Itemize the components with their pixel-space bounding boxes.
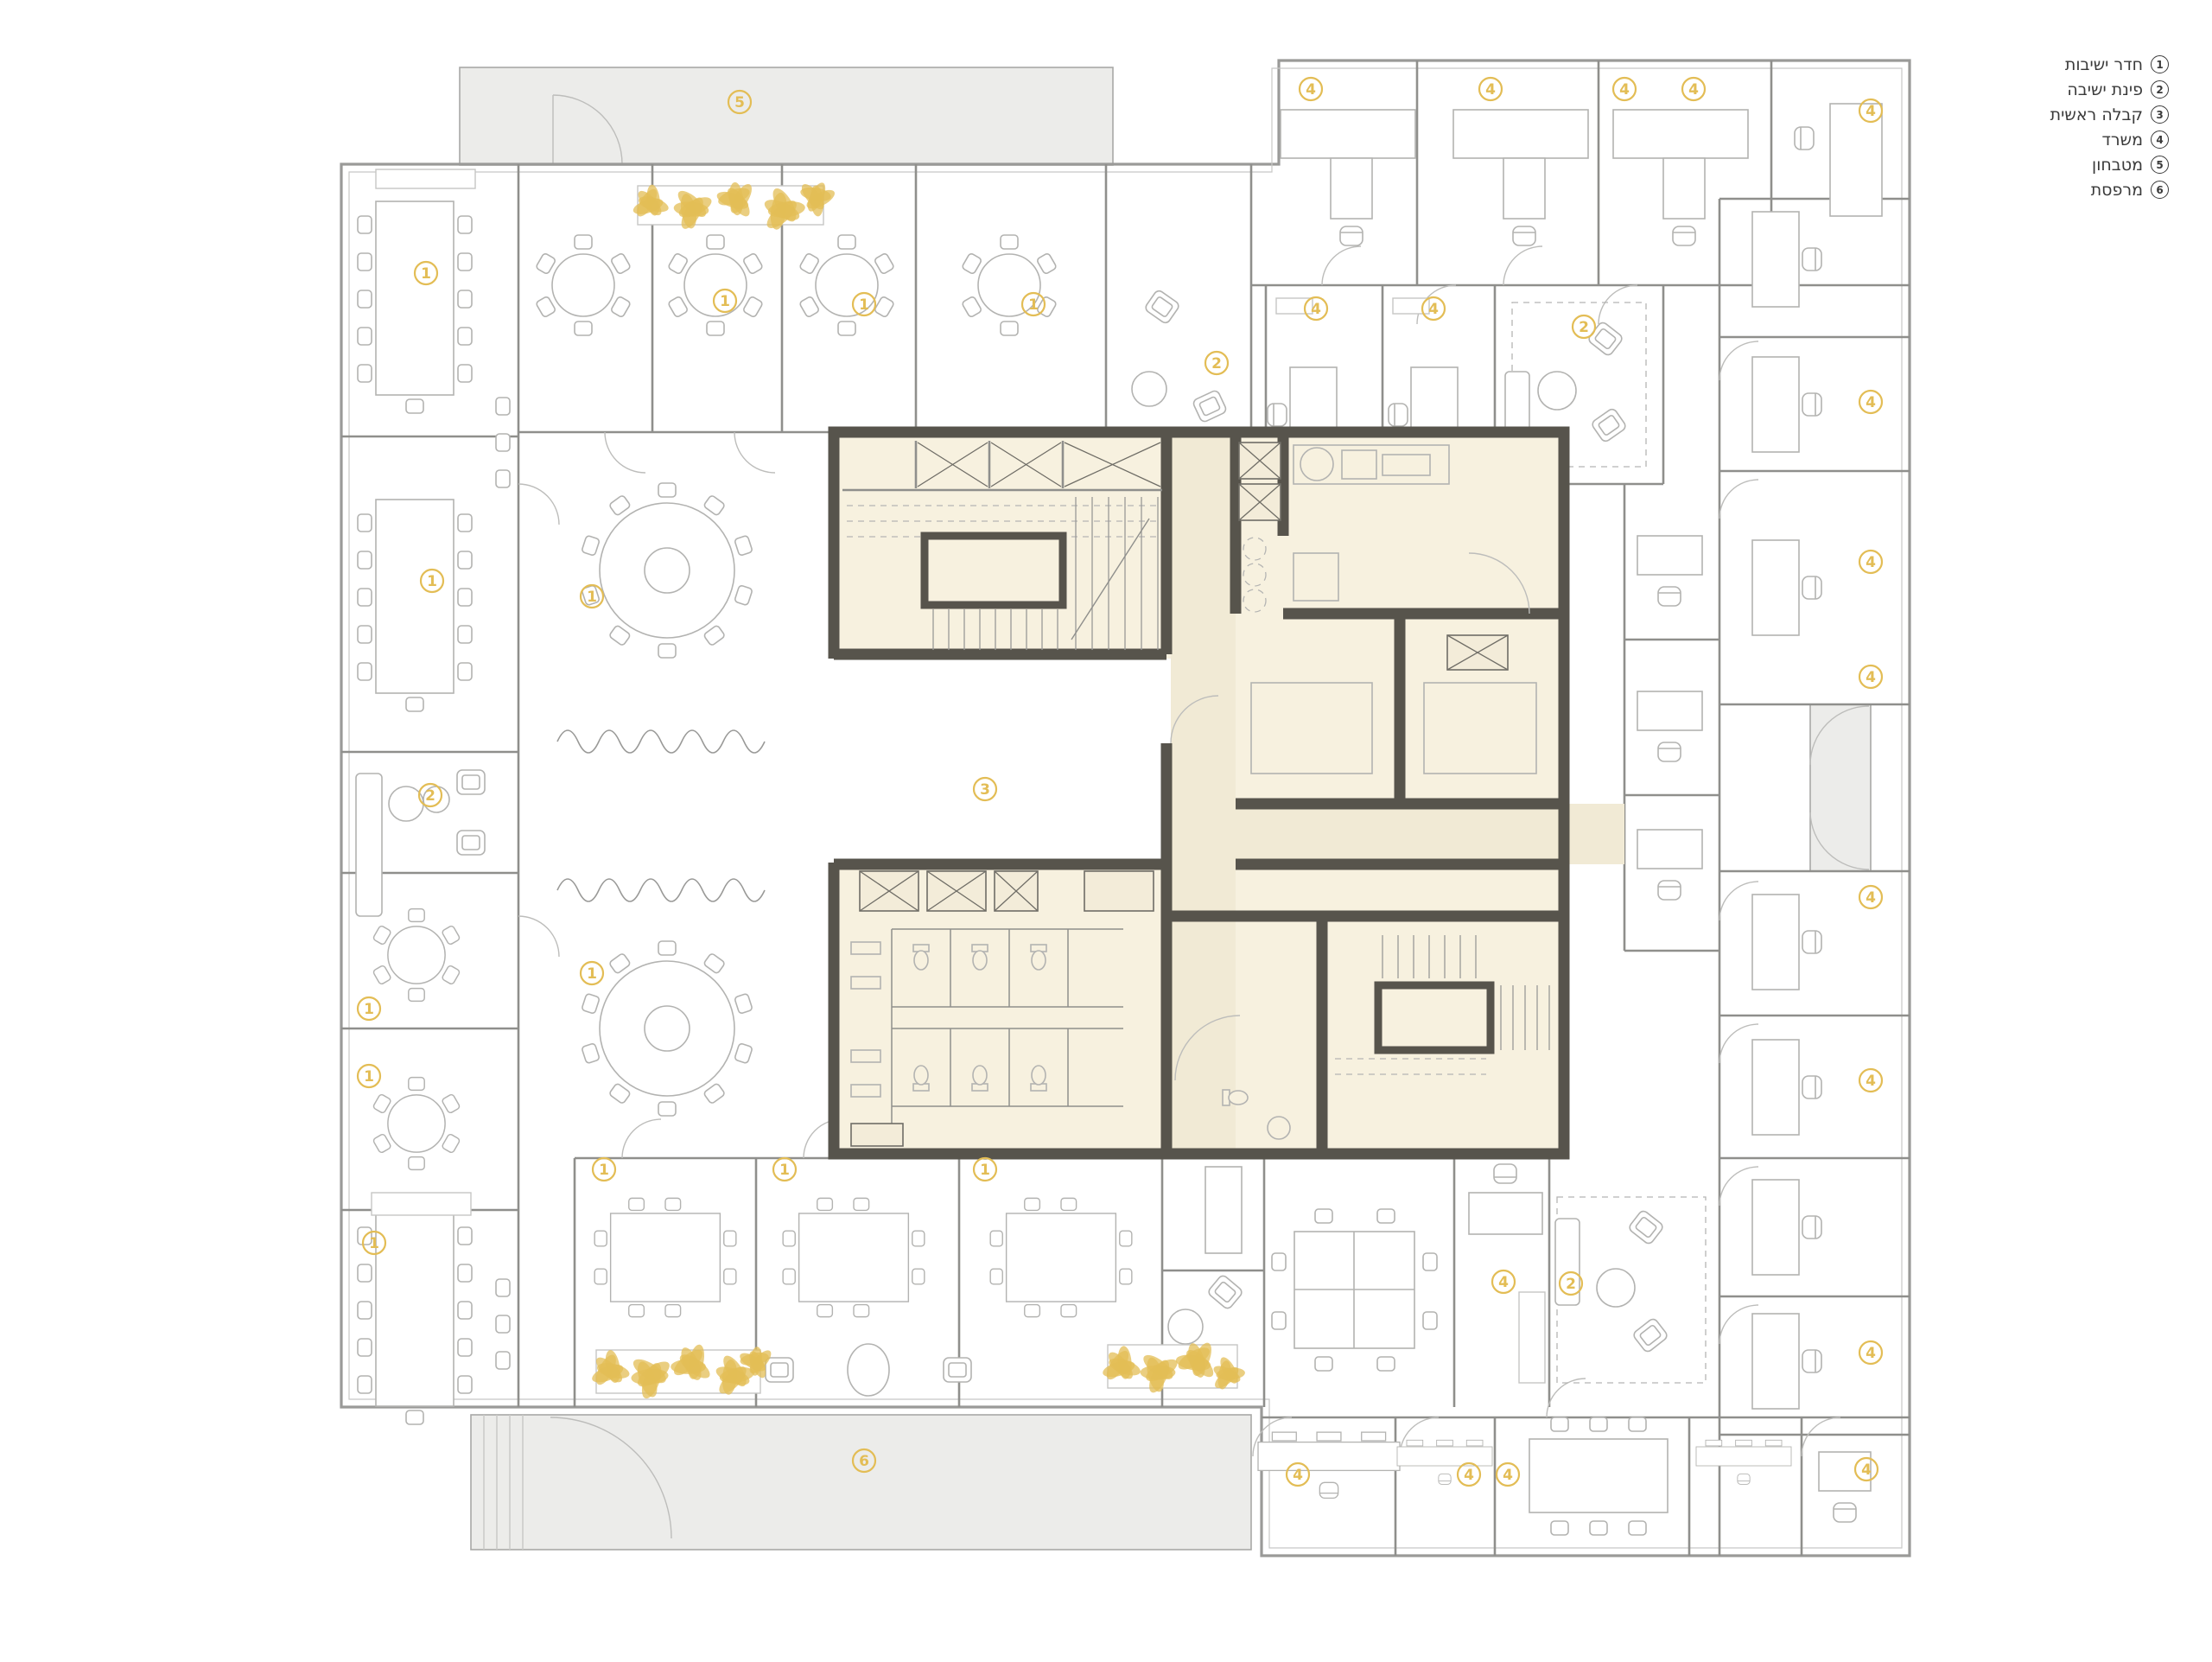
room-marker-1: 1 (593, 1158, 615, 1181)
legend-item-3: 3קבלה ראשית (2050, 102, 2169, 127)
svg-text:4: 4 (1866, 1073, 1876, 1090)
legend-item-1: 1חדר ישיבות (2050, 52, 2169, 77)
room-marker-1: 1 (773, 1158, 796, 1181)
room-marker-4: 4 (1859, 665, 1882, 688)
svg-text:2: 2 (1579, 319, 1589, 336)
room-marker-4: 4 (1458, 1463, 1480, 1486)
room-marker-4: 4 (1492, 1270, 1515, 1293)
room-marker-4: 4 (1479, 78, 1502, 100)
svg-text:1: 1 (427, 573, 437, 590)
svg-text:4: 4 (1866, 1345, 1876, 1362)
room-marker-4: 4 (1859, 1341, 1882, 1364)
svg-text:1: 1 (779, 1162, 790, 1179)
room-marker-2: 2 (1205, 352, 1228, 374)
svg-text:1: 1 (720, 293, 730, 310)
legend-item-5: 5מטבחון (2050, 152, 2169, 177)
room-marker-4: 4 (1497, 1463, 1519, 1486)
svg-text:5: 5 (734, 94, 745, 111)
legend-number-icon: 1 (2151, 55, 2169, 73)
svg-text:4: 4 (1866, 394, 1876, 411)
building-core (828, 432, 1624, 1154)
svg-text:4: 4 (1619, 81, 1630, 99)
svg-text:4: 4 (1498, 1274, 1509, 1291)
room-marker-4: 4 (1300, 78, 1322, 100)
svg-text:4: 4 (1861, 1461, 1872, 1479)
legend-number-icon: 6 (2151, 181, 2169, 199)
legend-item-2: 2פינת ישיבה (2050, 77, 2169, 102)
svg-text:2: 2 (425, 787, 435, 805)
svg-text:4: 4 (1311, 301, 1321, 318)
room-marker-2: 2 (1573, 315, 1595, 338)
svg-text:4: 4 (1503, 1467, 1513, 1484)
svg-text:1: 1 (364, 1001, 374, 1018)
legend-number-icon: 4 (2151, 131, 2169, 149)
svg-text:1: 1 (599, 1162, 609, 1179)
floor-plan-page: 56111124444444244441123111111142444444 1… (0, 0, 2212, 1662)
svg-text:1: 1 (364, 1068, 374, 1086)
legend-label: קבלה ראשית (2050, 105, 2143, 124)
room-marker-1: 1 (358, 1065, 380, 1087)
svg-text:4: 4 (1485, 81, 1496, 99)
floor-plan-canvas: 56111124444444244441123111111142444444 (0, 0, 2212, 1662)
room-marker-1: 1 (358, 997, 380, 1020)
legend-number-icon: 2 (2151, 80, 2169, 99)
room-marker-4: 4 (1287, 1463, 1309, 1486)
svg-text:2: 2 (1211, 355, 1222, 373)
svg-text:4: 4 (1866, 889, 1876, 907)
legend-item-4: 4משרד (2050, 127, 2169, 152)
svg-text:4: 4 (1306, 81, 1316, 99)
room-marker-4: 4 (1859, 886, 1882, 908)
legend-label: חדר ישיבות (2065, 55, 2143, 74)
legend-list: 1חדר ישיבות2פינת ישיבה3קבלה ראשית4משרד5מ… (2050, 52, 2169, 202)
svg-text:3: 3 (980, 781, 990, 799)
svg-text:4: 4 (1866, 103, 1876, 120)
svg-text:1: 1 (587, 589, 597, 606)
room-marker-4: 4 (1859, 1069, 1882, 1092)
svg-text:4: 4 (1464, 1467, 1474, 1484)
svg-text:4: 4 (1428, 301, 1439, 318)
legend-label: מטבחון (2092, 156, 2143, 175)
legend-label: פינת ישיבה (2067, 80, 2143, 99)
room-marker-4: 4 (1613, 78, 1636, 100)
accordion-partitions (557, 730, 765, 901)
legend-number-icon: 3 (2151, 105, 2169, 124)
balcony-deck-bottom (471, 1415, 1251, 1550)
svg-text:1: 1 (421, 265, 431, 283)
svg-text:1: 1 (1028, 296, 1039, 314)
svg-text:2: 2 (1566, 1276, 1576, 1293)
legend-label: משרד (2102, 131, 2143, 150)
svg-text:1: 1 (859, 296, 869, 314)
legend-item-6: 6מרפסת (2050, 177, 2169, 202)
svg-text:1: 1 (980, 1162, 990, 1179)
balcony-deck-right (1810, 704, 1871, 871)
legend-number-icon: 5 (2151, 156, 2169, 174)
room-marker-1: 1 (974, 1158, 996, 1181)
room-marker-1: 1 (581, 962, 603, 984)
legend: 1חדר ישיבות2פינת ישיבה3קבלה ראשית4משרד5מ… (2050, 52, 2169, 202)
room-marker-4: 4 (1682, 78, 1705, 100)
svg-text:4: 4 (1293, 1467, 1303, 1484)
svg-text:6: 6 (859, 1453, 869, 1470)
svg-text:4: 4 (1866, 554, 1876, 571)
svg-text:1: 1 (369, 1235, 379, 1252)
svg-text:1: 1 (587, 965, 597, 983)
legend-label: מרפסת (2091, 181, 2143, 200)
svg-text:4: 4 (1688, 81, 1699, 99)
room-marker-4: 4 (1859, 391, 1882, 413)
balcony-deck-top (460, 67, 1113, 165)
svg-text:4: 4 (1866, 669, 1876, 686)
room-marker-4: 4 (1859, 551, 1882, 573)
